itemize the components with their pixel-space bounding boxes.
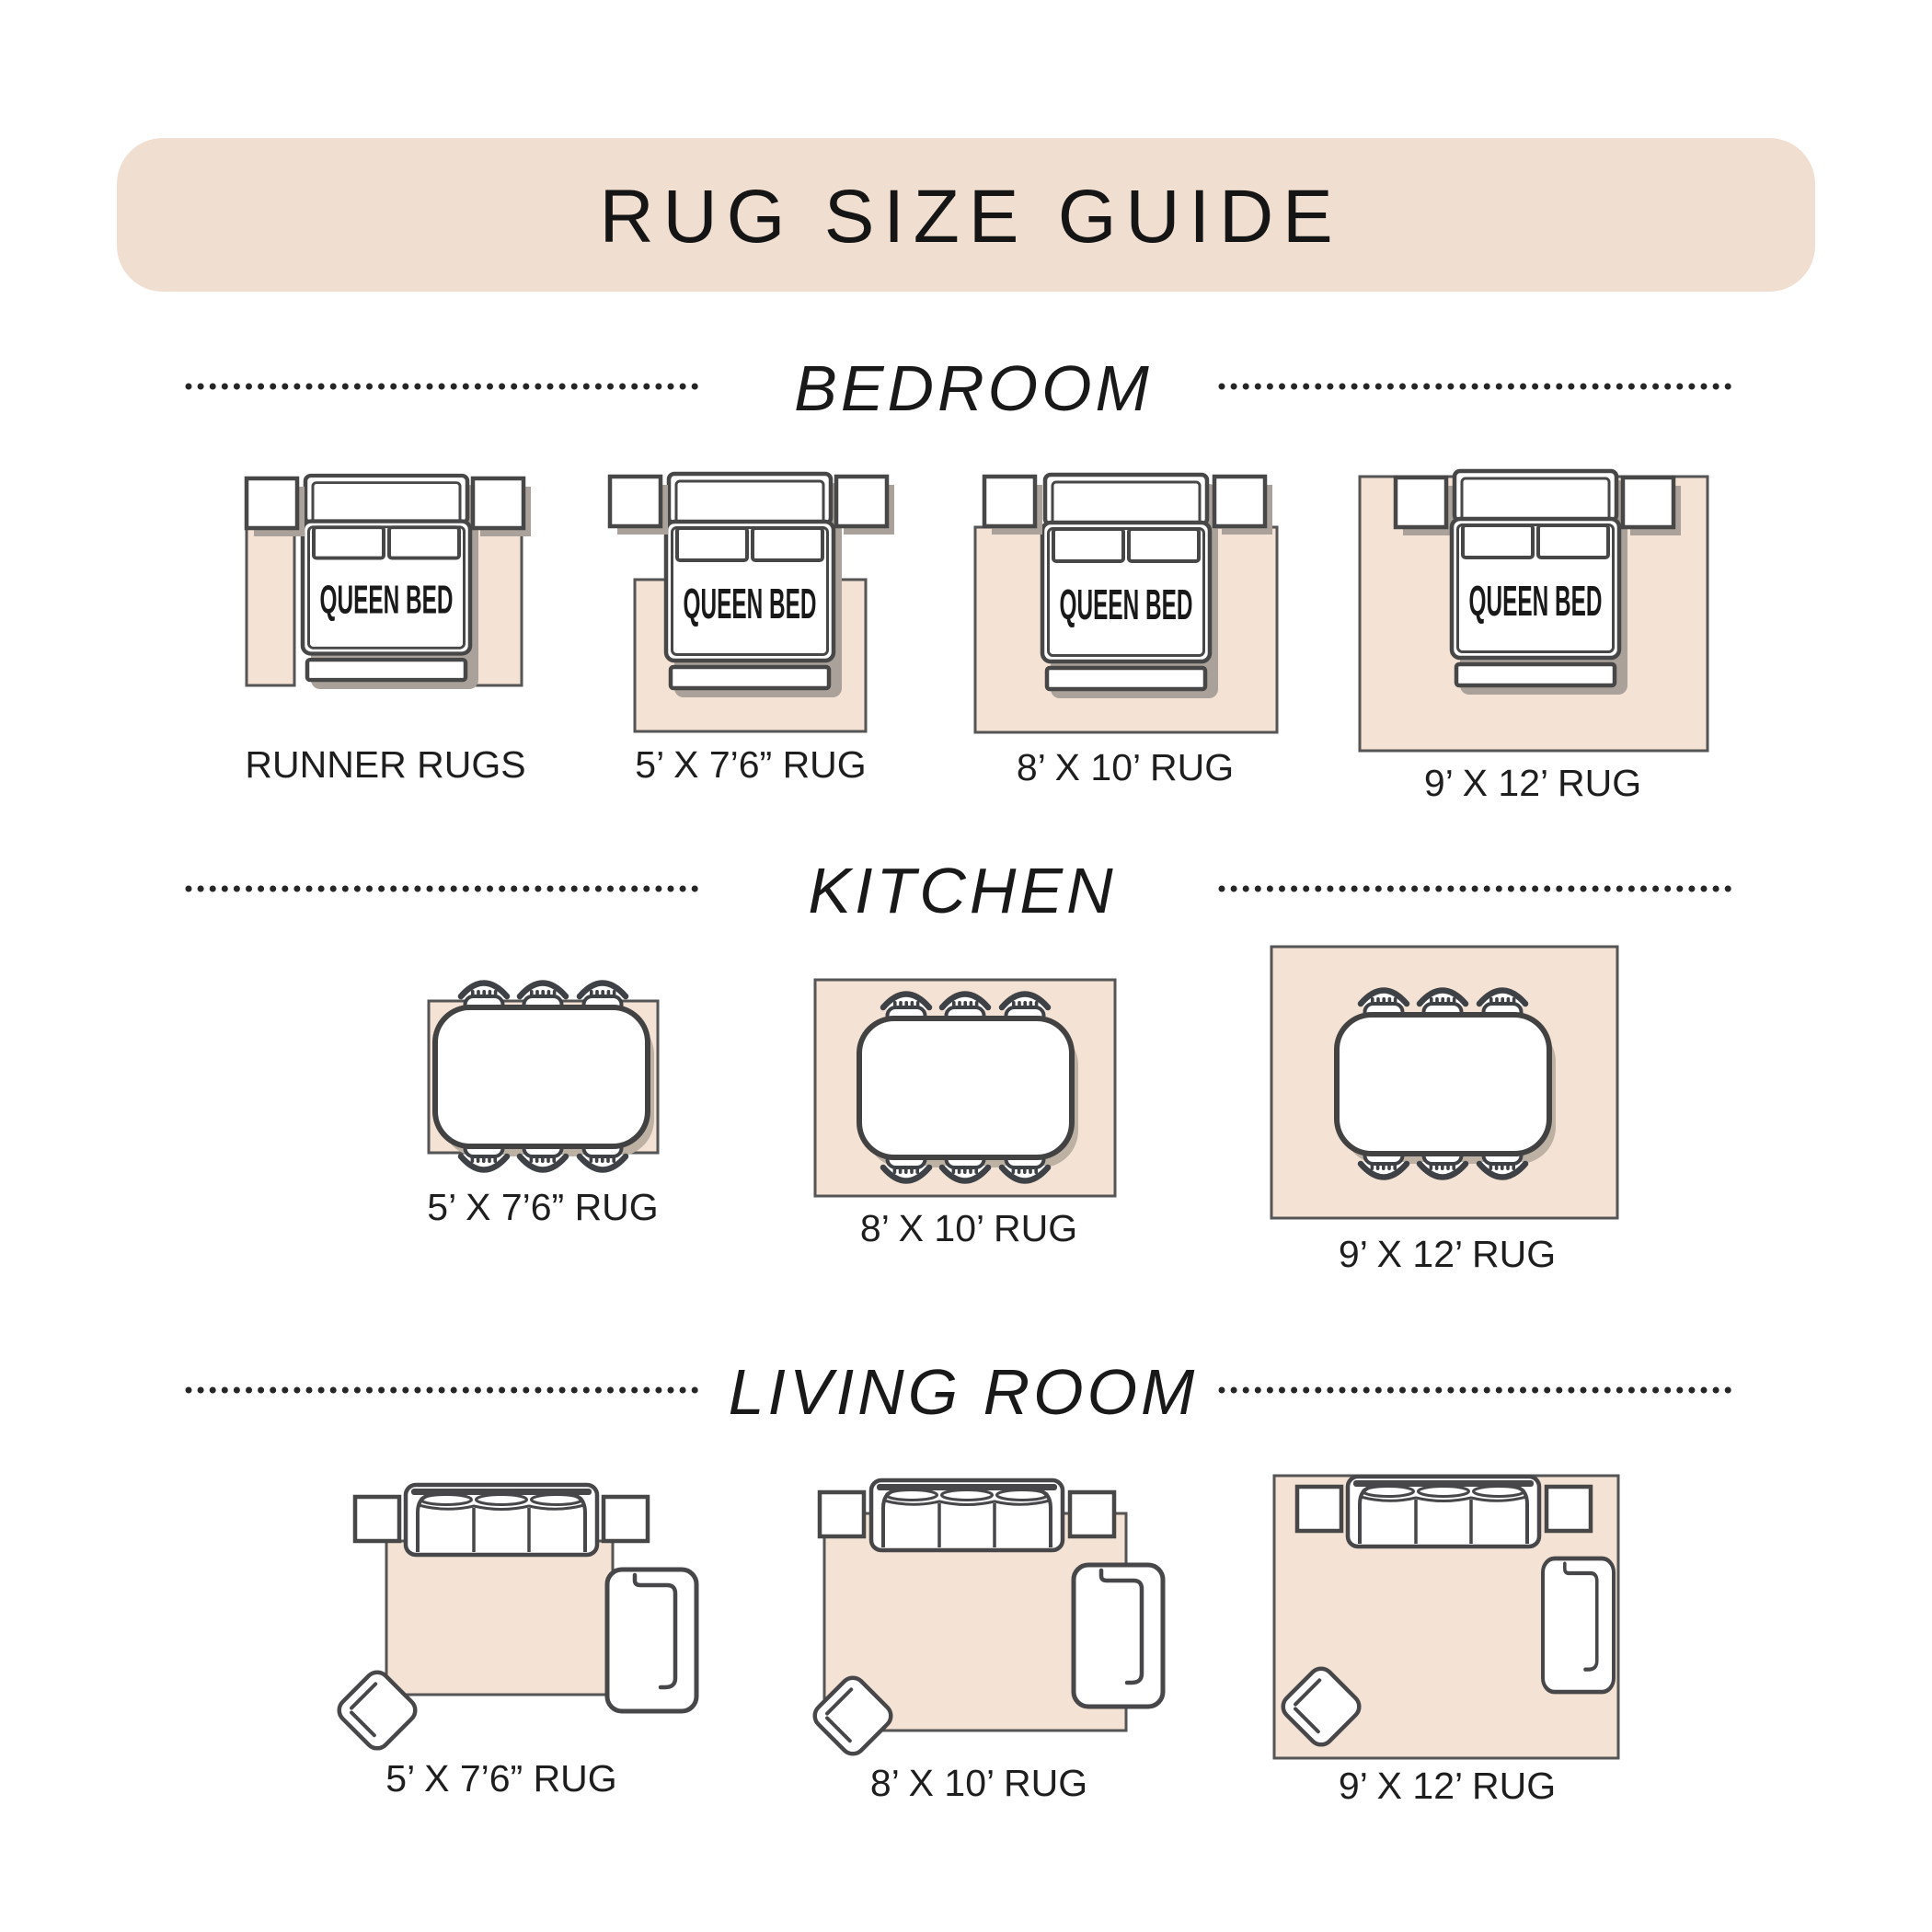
svg-text:BEDROOM: BEDROOM — [794, 352, 1153, 424]
svg-text:5’ X 7’6” RUG: 5’ X 7’6” RUG — [427, 1186, 658, 1228]
svg-text:9’ X 12’ RUG: 9’ X 12’ RUG — [1339, 1765, 1556, 1807]
svg-text:9’ X 12’ RUG: 9’ X 12’ RUG — [1339, 1233, 1556, 1275]
svg-text:8’ X 10’ RUG: 8’ X 10’ RUG — [870, 1762, 1087, 1804]
svg-text:9’ X 12’ RUG: 9’ X 12’ RUG — [1424, 762, 1641, 804]
svg-text:LIVING ROOM: LIVING ROOM — [729, 1356, 1199, 1428]
svg-text:8’ X 10’ RUG: 8’ X 10’ RUG — [860, 1207, 1077, 1249]
svg-text:RUNNER RUGS: RUNNER RUGS — [245, 743, 525, 786]
svg-text:5’ X 7’6” RUG: 5’ X 7’6” RUG — [385, 1757, 616, 1800]
svg-text:RUG SIZE GUIDE: RUG SIZE GUIDE — [600, 175, 1342, 259]
svg-text:KITCHEN: KITCHEN — [808, 855, 1116, 926]
svg-text:8’ X 10’ RUG: 8’ X 10’ RUG — [1017, 746, 1234, 788]
svg-text:5’ X 7’6” RUG: 5’ X 7’6” RUG — [635, 743, 866, 786]
